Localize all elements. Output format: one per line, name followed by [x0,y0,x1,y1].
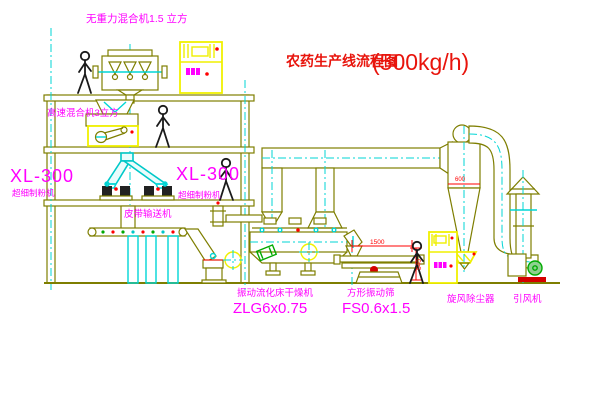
flanged-pipe [213,206,223,226]
dryer-bottom [250,252,347,263]
dim-screen-height: 540 [416,259,423,270]
indicator-light [205,72,209,76]
fan-base [518,277,546,282]
dryer-port [289,218,301,224]
label-screen-model: FS0.6x1.5 [342,300,410,317]
cabinet-button [434,262,438,268]
conveyor-support [146,236,156,283]
cyclone-outlet-elbow [453,125,471,143]
fan-housing [508,254,526,276]
indicator-light [215,47,219,51]
diagram-title-capacity: (500kg/h) [372,49,469,75]
label-high-speed-mixer: 高速混合机3立方 [47,107,119,119]
chute-left-branch [106,161,130,184]
label-screen-name: 方形振动筛 [347,287,395,299]
dryer-leg [305,263,311,271]
label-center-mill-name: 超细制粉机 [178,190,221,200]
cabinet-button [191,68,195,75]
y-splitter-chute [106,153,166,184]
mill-base [100,196,132,200]
label-belt-conveyor: 皮带输送机 [124,208,172,220]
conveyor-support [168,236,178,283]
person-roof [78,52,91,93]
mill-left [100,182,132,200]
screen-deck-lower [342,263,417,268]
feed-pipe [226,215,262,222]
control-cabinet-top [180,42,222,93]
cabinet-button [439,262,443,268]
label-cyclone: 旋风除尘器 [447,293,495,305]
conveyor-pulley [88,228,96,236]
dim-cyclone: 600 [455,177,466,183]
label-fan: 引风机 [513,293,542,305]
floor3-slab [44,200,254,206]
screen-deck-upper [338,256,420,262]
dryer-port [264,218,276,224]
feeder-body [203,260,223,268]
mill-center [142,182,174,200]
indicator-light [449,264,452,267]
mill-base [142,196,174,200]
label-gravity-mixer: 无重力混合机1.5 立方 [86,12,188,25]
cabinet-button [186,68,190,75]
conveyor-support [128,236,138,283]
feeder-pedestal [206,268,222,280]
dryer-port [314,218,326,224]
cabinet-button [443,262,447,268]
exhaust-duct-network [262,142,452,228]
floor2-slab [44,147,254,153]
indicator-light [451,237,454,240]
diagram-canvas: 无重力混合机1.5 立方 农药生产线流程图 (500kg/h) 高速混合机3立方… [0,0,600,403]
control-cabinet-ground [429,232,457,283]
label-left-mill-model: XL-300 [10,166,74,186]
belt-conveyor [88,228,187,283]
fan-motor [528,261,542,275]
label-left-mill-name: 超细制粉机 [12,188,55,198]
high-speed-mixer [86,100,138,146]
process-flow-diagram: 无重力混合机1.5 立方 农药生产线流程图 (500kg/h) 高速混合机3立方… [0,0,600,403]
dryer-leg [270,263,276,271]
person-floor2 [156,106,169,147]
label-dryer-model: ZLG6x0.75 [233,300,307,317]
screen-feed-funnel [346,246,362,256]
roof-slab [44,95,254,101]
label-center-mill-model: XL-300 [176,164,240,184]
dim-screen-length: 1500 [370,239,385,246]
cabinet-button [196,68,200,75]
label-dryer-name: 振动流化床干燥机 [237,287,314,299]
